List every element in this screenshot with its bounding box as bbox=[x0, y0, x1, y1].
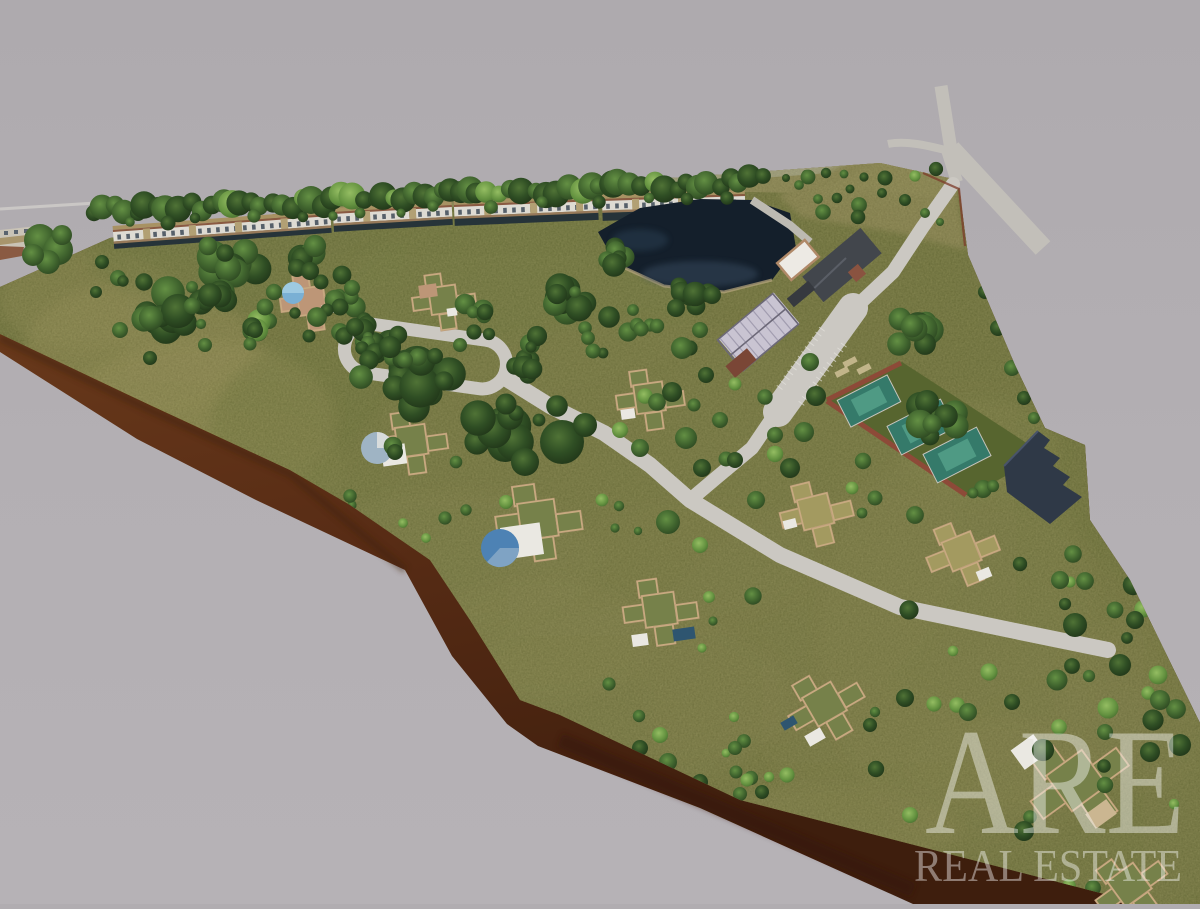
svg-text:REAL ESTATE: REAL ESTATE bbox=[914, 840, 1182, 891]
